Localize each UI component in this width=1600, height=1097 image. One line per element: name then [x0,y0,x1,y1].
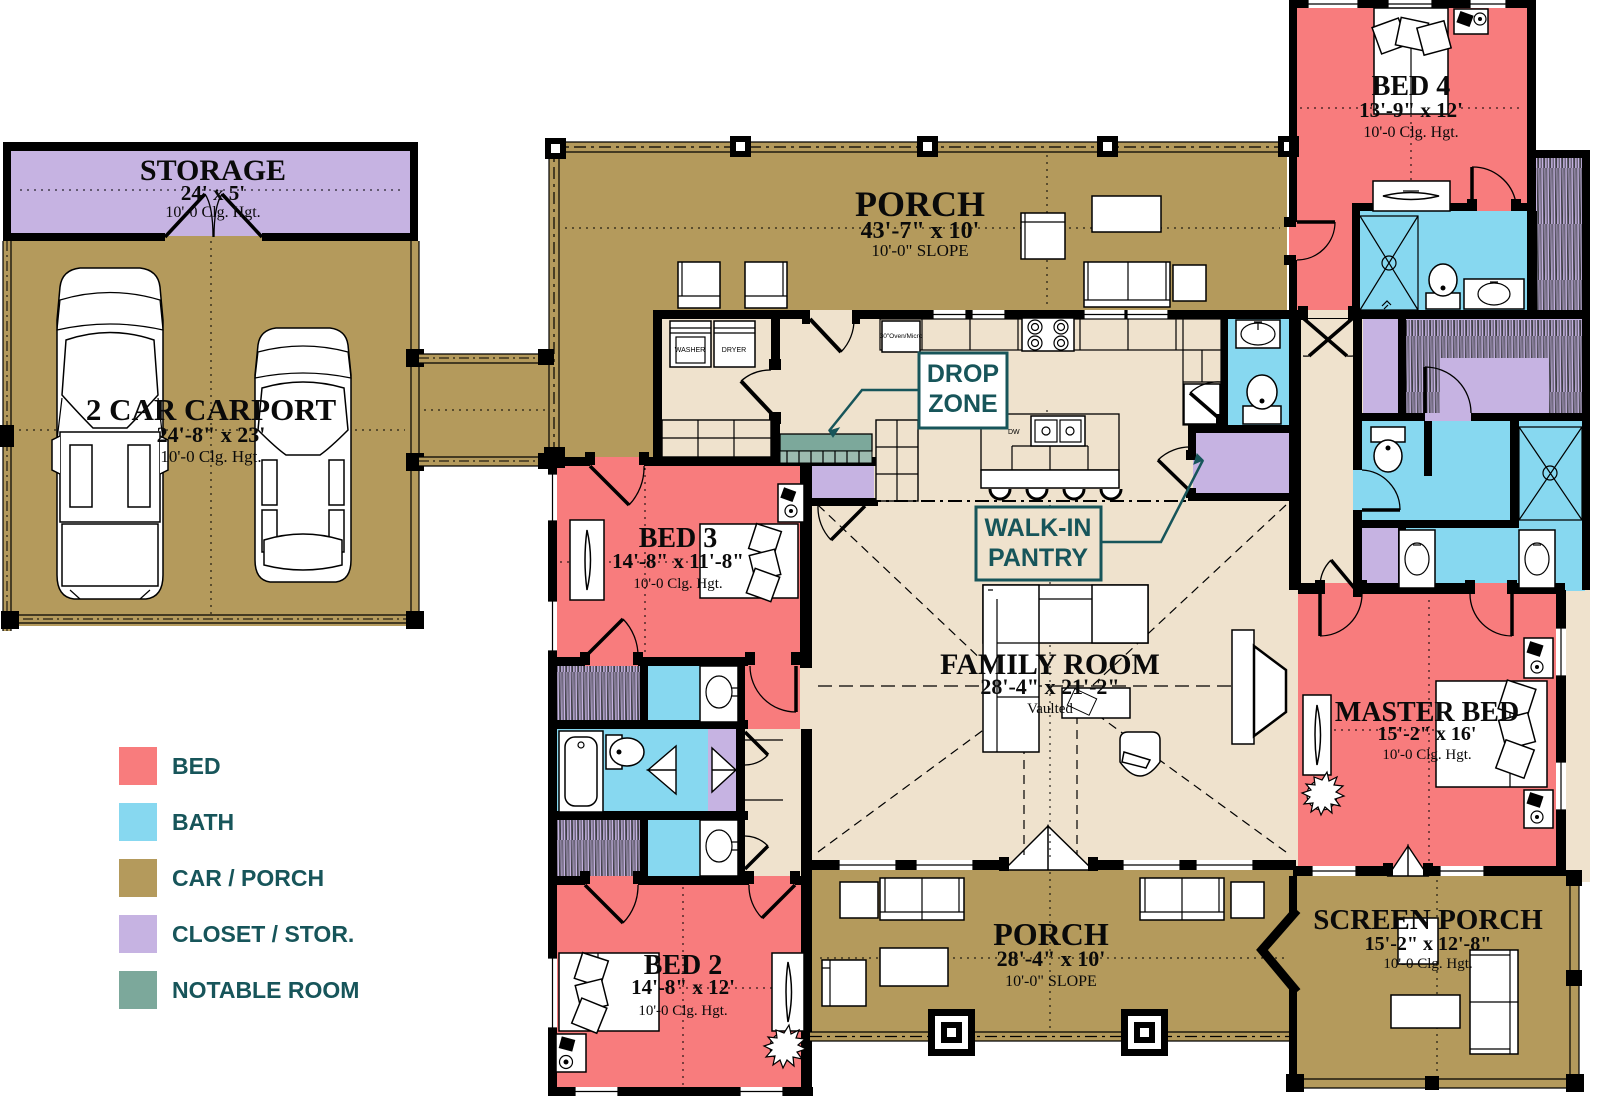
svg-text:15'-2" x 16': 15'-2" x 16' [1378,723,1477,745]
svg-text:DW: DW [1008,429,1020,436]
svg-text:PANTRY: PANTRY [988,544,1088,572]
svg-text:30"Oven/Micro: 30"Oven/Micro [880,333,923,340]
svg-text:24' x 5': 24' x 5' [181,181,245,205]
svg-text:10'-0" SLOPE: 10'-0" SLOPE [871,241,968,260]
svg-text:BED: BED [172,753,221,779]
svg-text:WASHER: WASHER [675,347,705,354]
svg-text:24'-8" x 23': 24'-8" x 23' [157,422,266,447]
svg-text:SCREEN PORCH: SCREEN PORCH [1313,904,1543,936]
svg-text:BATH: BATH [172,809,234,835]
svg-text:10'-0 Clg. Hgt.: 10'-0 Clg. Hgt. [1383,956,1472,972]
svg-text:10'-0" SLOPE: 10'-0" SLOPE [1005,973,1097,990]
svg-text:WALK-IN: WALK-IN [985,514,1092,542]
svg-text:13'-9" x 12': 13'-9" x 12' [1359,98,1463,122]
svg-text:28'-4" x 10': 28'-4" x 10' [997,946,1106,971]
svg-text:NOTABLE ROOM: NOTABLE ROOM [172,977,359,1003]
svg-text:DRYER: DRYER [722,347,746,354]
svg-text:CLOSET / STOR.: CLOSET / STOR. [172,921,354,947]
svg-text:14'-8" x 11'-8": 14'-8" x 11'-8" [612,549,744,573]
svg-text:ZONE: ZONE [928,390,997,418]
svg-text:14'-8" x 12': 14'-8" x 12' [631,975,735,999]
svg-text:10'-0 Clg. Hgt.: 10'-0 Clg. Hgt. [1363,124,1458,141]
svg-text:DROP: DROP [927,360,999,388]
svg-text:Vaulted: Vaulted [1027,701,1073,717]
svg-text:15'-2" x 12'-8": 15'-2" x 12'-8" [1365,933,1492,955]
svg-text:10'-0 Clg. Hgt.: 10'-0 Clg. Hgt. [638,1003,727,1019]
svg-text:10'-0 Clg. Hgt.: 10'-0 Clg. Hgt. [633,576,722,592]
svg-text:28'-4" x 21'-2": 28'-4" x 21'-2" [980,674,1119,699]
svg-text:CAR / PORCH: CAR / PORCH [172,865,324,891]
svg-text:10'-0 Clg. Hgt.: 10'-0 Clg. Hgt. [160,447,261,466]
svg-text:10'-0 Clg. Hgt.: 10'-0 Clg. Hgt. [165,204,260,221]
svg-text:10'-0 Clg. Hgt.: 10'-0 Clg. Hgt. [1382,747,1471,763]
